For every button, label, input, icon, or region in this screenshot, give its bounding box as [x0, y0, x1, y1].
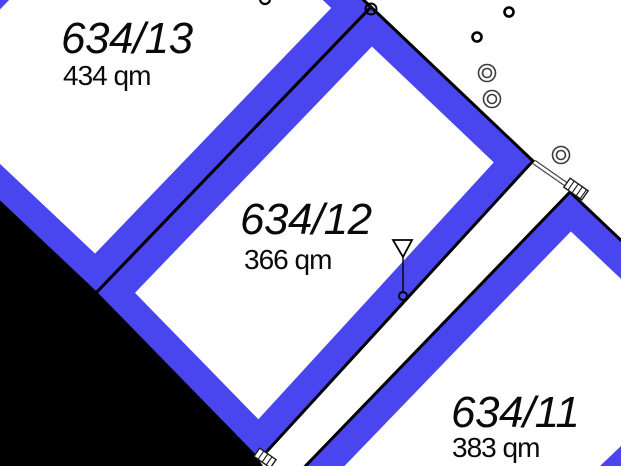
dot-circle-icon [473, 33, 482, 42]
parcel-634-12-area: 366 qm [244, 246, 331, 274]
parcel-634-11-area: 383 qm [452, 434, 539, 462]
parcel-634-13-number: 634/13 [61, 17, 193, 61]
parcel-634-11-number: 634/11 [451, 391, 579, 435]
boundary-point-circle-icon [260, 0, 270, 4]
parcel-634-13-area: 434 qm [63, 62, 150, 90]
dot-circle-icon [505, 8, 514, 17]
parcel-634-12-number: 634/12 [240, 198, 372, 242]
cadastral-map-view: 634/13 434 qm 634/12 366 qm 634/11 383 q… [0, 0, 621, 466]
